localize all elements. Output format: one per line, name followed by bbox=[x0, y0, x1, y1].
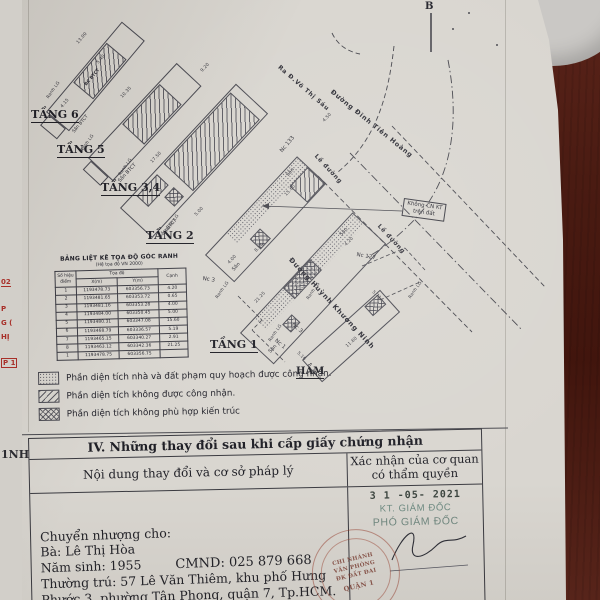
kt-giam-doc-label: KT. GIÁM ĐỐC bbox=[348, 501, 482, 515]
edge-fragment: 1NH bbox=[1, 448, 29, 461]
edge-fragment: P 1 bbox=[1, 358, 17, 368]
legend-swatch bbox=[39, 408, 60, 421]
legend-item: Phần diện tích không được công nhận. bbox=[38, 385, 332, 403]
col-header-point: Số hiệu điểm bbox=[55, 271, 76, 288]
legend-item: Phần diện tích không phù hợp kiến trúc bbox=[39, 403, 333, 421]
legend: Phần diện tích nhà và đất phạm quy hoạch… bbox=[38, 367, 332, 426]
legend-swatch bbox=[38, 372, 59, 385]
point-id: 1 bbox=[57, 352, 78, 361]
dimension: 4.50 bbox=[322, 112, 333, 123]
fold-line bbox=[505, 0, 506, 600]
street-dinh-tien-hoang-label: Đường Đinh Tiên Hoàng bbox=[329, 88, 415, 159]
ra-vo-thi-sau-label: Ra Đ.Võ Thị Sáu bbox=[276, 64, 330, 112]
x-value: 1193478.75 bbox=[78, 351, 119, 360]
coordinate-table: Số hiệu điểm Tọa độ Cạnh X(m) Y(m) 1 119 bbox=[54, 267, 188, 361]
date-stamp: 3 1 -05- 2021 bbox=[348, 488, 482, 502]
certificate-page: B BC BTCT Sân BTCT Sân BTCT bbox=[0, 0, 600, 600]
nc-3-label: Nc 3 bbox=[202, 276, 215, 284]
speck bbox=[452, 28, 454, 30]
ranh-lg-label: Ranh LG bbox=[408, 281, 423, 300]
edge-fragment: P bbox=[1, 305, 6, 313]
legend-text: Phần diện tích nhà và đất phạm quy hoạch… bbox=[66, 368, 332, 383]
legend-text: Phần diện tích không phù hợp kiến trúc bbox=[67, 406, 240, 419]
speck bbox=[496, 44, 498, 46]
dimension: 5.00 bbox=[194, 206, 205, 217]
legend-item: Phần diện tích nhà và đất phạm quy hoạch… bbox=[38, 367, 332, 385]
legend-text: Phần diện tích không được công nhận. bbox=[66, 388, 235, 401]
column-header-right: Xác nhận của cơ quan có thẩm quyền bbox=[347, 451, 482, 486]
legend-swatch bbox=[38, 390, 59, 403]
dimension: 10.35 bbox=[120, 86, 133, 99]
edge-length bbox=[160, 349, 188, 358]
coordinate-table-block: BẢNG LIỆT KÊ TỌA ĐỘ GÓC RANH (Hệ tọa độ … bbox=[52, 252, 189, 361]
y-value: 603356.75 bbox=[119, 350, 160, 359]
ranh-lg-label: Ranh LG bbox=[215, 281, 230, 300]
fold-line bbox=[28, 0, 29, 432]
nc-133-label: Nc 133 bbox=[279, 135, 296, 154]
birth-year: Năm sinh: 1955 bbox=[40, 557, 141, 575]
dimension: 13.00 bbox=[76, 32, 89, 46]
pho-giam-doc-label: PHÓ GIÁM ĐỐC bbox=[349, 514, 483, 529]
underlying-page-edge bbox=[0, 0, 23, 600]
col-header-edge: Cạnh bbox=[158, 268, 186, 285]
edge-fragment: 02 bbox=[1, 278, 11, 287]
transfer-text-block: Chuyển nhượng cho: Bà: Lê Thị Hòa Năm si… bbox=[30, 487, 351, 600]
dimension: 9.20 bbox=[200, 62, 211, 73]
khong-cn-kt-note: Không CN KT trên đất bbox=[402, 198, 447, 222]
label-tang-6: TẦNG 6 bbox=[31, 108, 79, 123]
edge-fragment: HỊ bbox=[1, 333, 9, 341]
dimension: 21.25 bbox=[254, 291, 267, 304]
north-indicator-label: B bbox=[425, 1, 433, 12]
edge-fragment: G ( bbox=[1, 319, 12, 327]
speck bbox=[468, 12, 470, 14]
section-iv-table: IV. Những thay đổi sau khi cấp giấy chứn… bbox=[28, 428, 487, 600]
column-header-right-line2: có thẩm quyền bbox=[349, 466, 481, 483]
stamp-inner-ring bbox=[314, 531, 398, 600]
label-tang-1: TẦNG 1 bbox=[210, 338, 258, 353]
authority-confirmation-cell: 3 1 -05- 2021 KT. GIÁM ĐỐC PHÓ GIÁM ĐỐC … bbox=[348, 484, 486, 600]
photo-of-document: B BC BTCT Sân BTCT Sân BTCT bbox=[0, 0, 600, 600]
column-header-left: Nội dung thay đổi và cơ sở pháp lý bbox=[29, 453, 348, 492]
label-tang-3-4: TẦNG 3,4 bbox=[101, 181, 160, 196]
dimension: 5.16 bbox=[296, 351, 307, 362]
